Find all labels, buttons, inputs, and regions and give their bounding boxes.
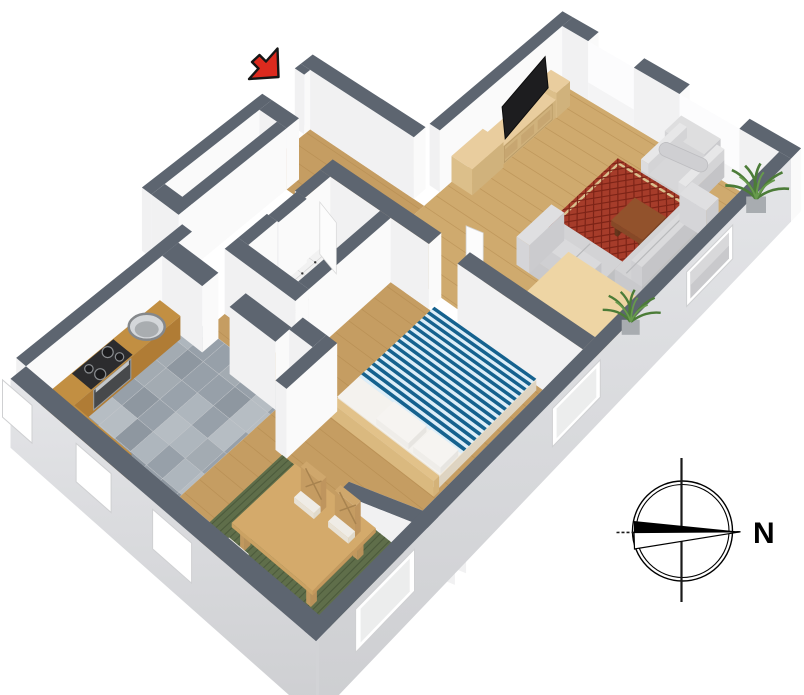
svg-text:N: N	[753, 517, 775, 550]
